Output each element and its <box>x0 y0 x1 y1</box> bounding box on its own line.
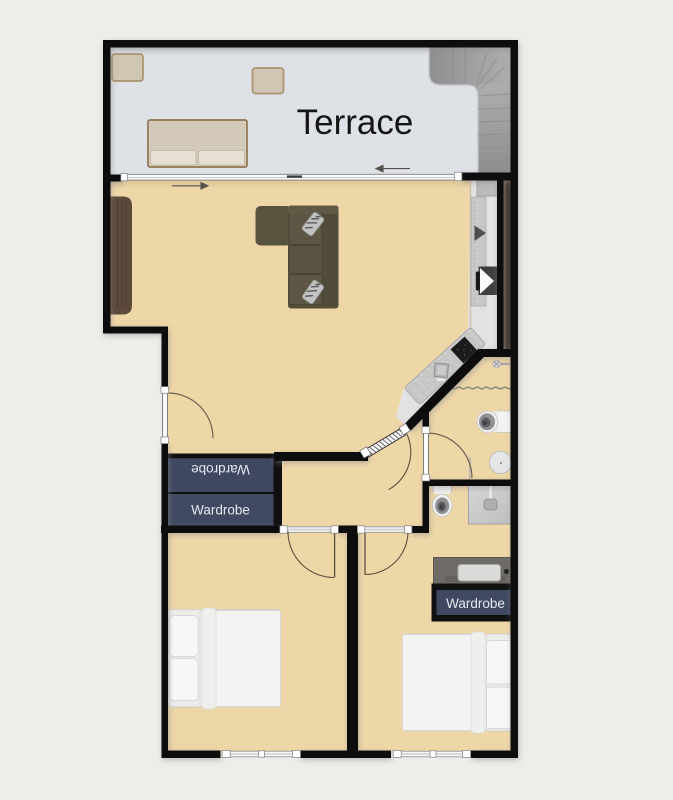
svg-text:Terrace: Terrace <box>297 103 414 142</box>
svg-text:Wardrobe: Wardrobe <box>191 503 250 518</box>
svg-text:Wardrobe: Wardrobe <box>191 462 250 477</box>
svg-text:Wardrobe: Wardrobe <box>446 596 505 611</box>
